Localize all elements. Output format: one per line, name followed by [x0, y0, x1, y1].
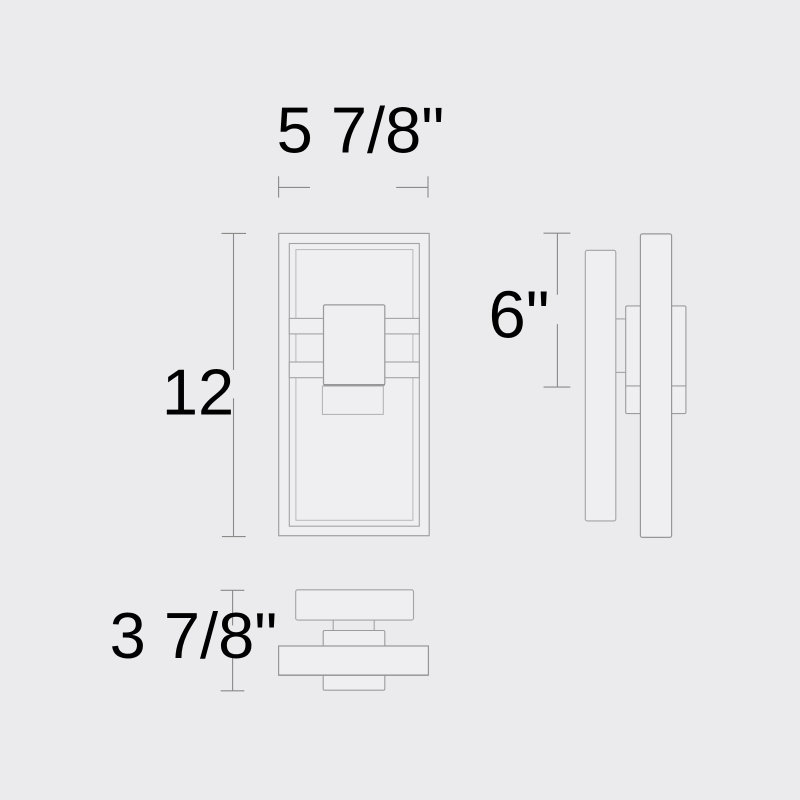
svg-text:3 7/8": 3 7/8": [110, 599, 278, 672]
svg-text:5 7/8": 5 7/8": [277, 94, 445, 167]
svg-text:12: 12: [162, 356, 234, 429]
svg-text:6": 6": [488, 278, 549, 353]
